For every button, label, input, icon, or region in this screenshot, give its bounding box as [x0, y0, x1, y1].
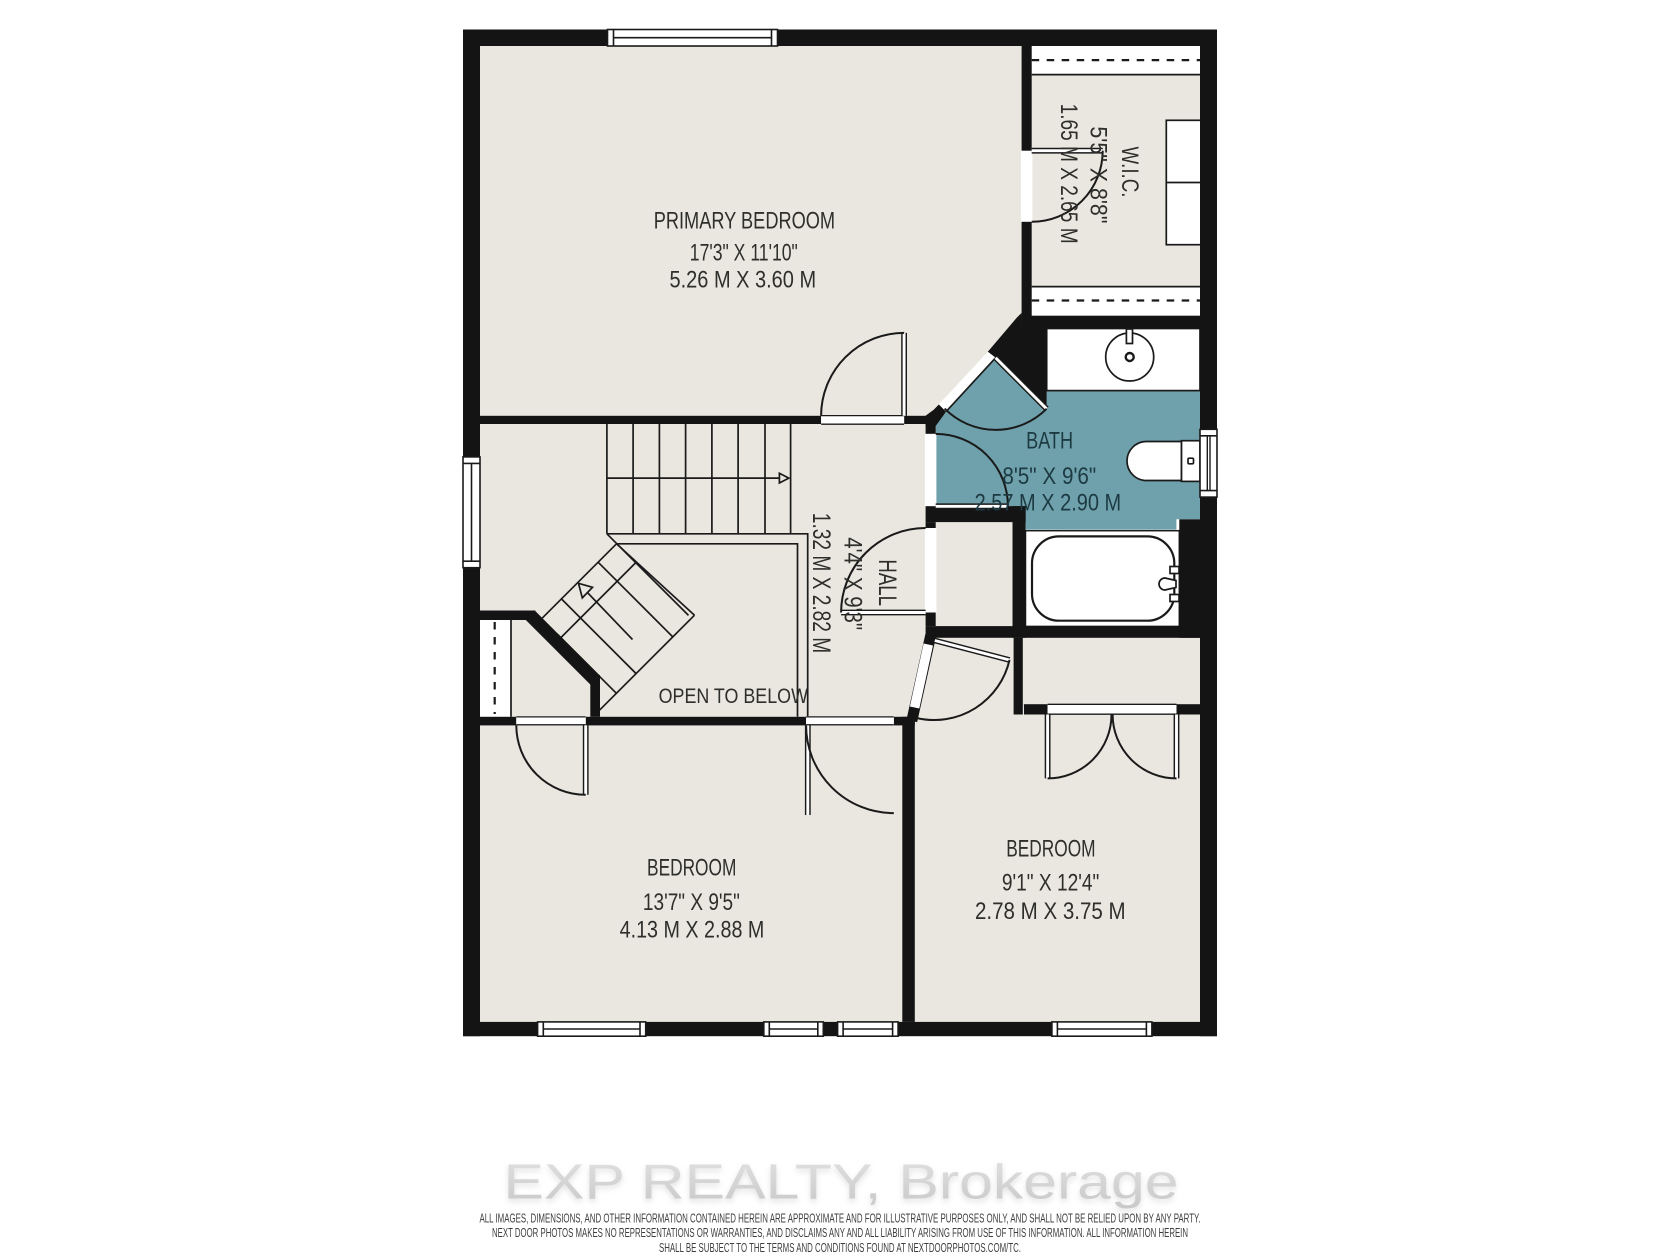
svg-text:PRIMARY BEDROOM: PRIMARY BEDROOM [654, 207, 835, 234]
svg-text:OPEN TO BELOW: OPEN TO BELOW [659, 684, 809, 708]
svg-text:5.26 M X 3.60 M: 5.26 M X 3.60 M [670, 266, 817, 293]
svg-text:2.57 M X 2.90 M: 2.57 M X 2.90 M [975, 490, 1122, 517]
svg-text:EXP REALTY, Brokerage: EXP REALTY, Brokerage [504, 1155, 1179, 1210]
svg-text:BEDROOM: BEDROOM [647, 854, 736, 881]
svg-text:1.32 M X 2.82 M: 1.32 M X 2.82 M [807, 513, 835, 653]
svg-text:HALL: HALL [873, 559, 901, 606]
svg-text:9'1" X 12'4": 9'1" X 12'4" [1002, 870, 1100, 897]
svg-text:8'5" X 9'6": 8'5" X 9'6" [1002, 463, 1096, 490]
svg-text:NEXT DOOR PHOTOS MAKES NO REPR: NEXT DOOR PHOTOS MAKES NO REPRESENTATION… [492, 1225, 1188, 1240]
svg-text:SHALL BE SUBJECT TO THE TERMS: SHALL BE SUBJECT TO THE TERMS AND CONDIT… [659, 1240, 1021, 1255]
svg-text:4.13 M X 2.88 M: 4.13 M X 2.88 M [620, 917, 765, 944]
svg-text:5'5" X 8'8": 5'5" X 8'8" [1084, 126, 1111, 223]
svg-text:4'4" X 9'3": 4'4" X 9'3" [839, 537, 867, 630]
svg-text:2.78 M X 3.75 M: 2.78 M X 3.75 M [975, 898, 1126, 925]
svg-text:W.I.C.: W.I.C. [1116, 147, 1143, 198]
svg-text:ALL IMAGES, DIMENSIONS, AND OT: ALL IMAGES, DIMENSIONS, AND OTHER INFORM… [480, 1211, 1201, 1226]
svg-text:13'7" X 9'5": 13'7" X 9'5" [643, 889, 740, 916]
svg-text:17'3" X 11'10": 17'3" X 11'10" [690, 240, 798, 267]
svg-text:BATH: BATH [1026, 428, 1073, 455]
svg-text:1.65 M X 2.65 M: 1.65 M X 2.65 M [1055, 104, 1082, 244]
svg-text:BEDROOM: BEDROOM [1006, 835, 1095, 862]
